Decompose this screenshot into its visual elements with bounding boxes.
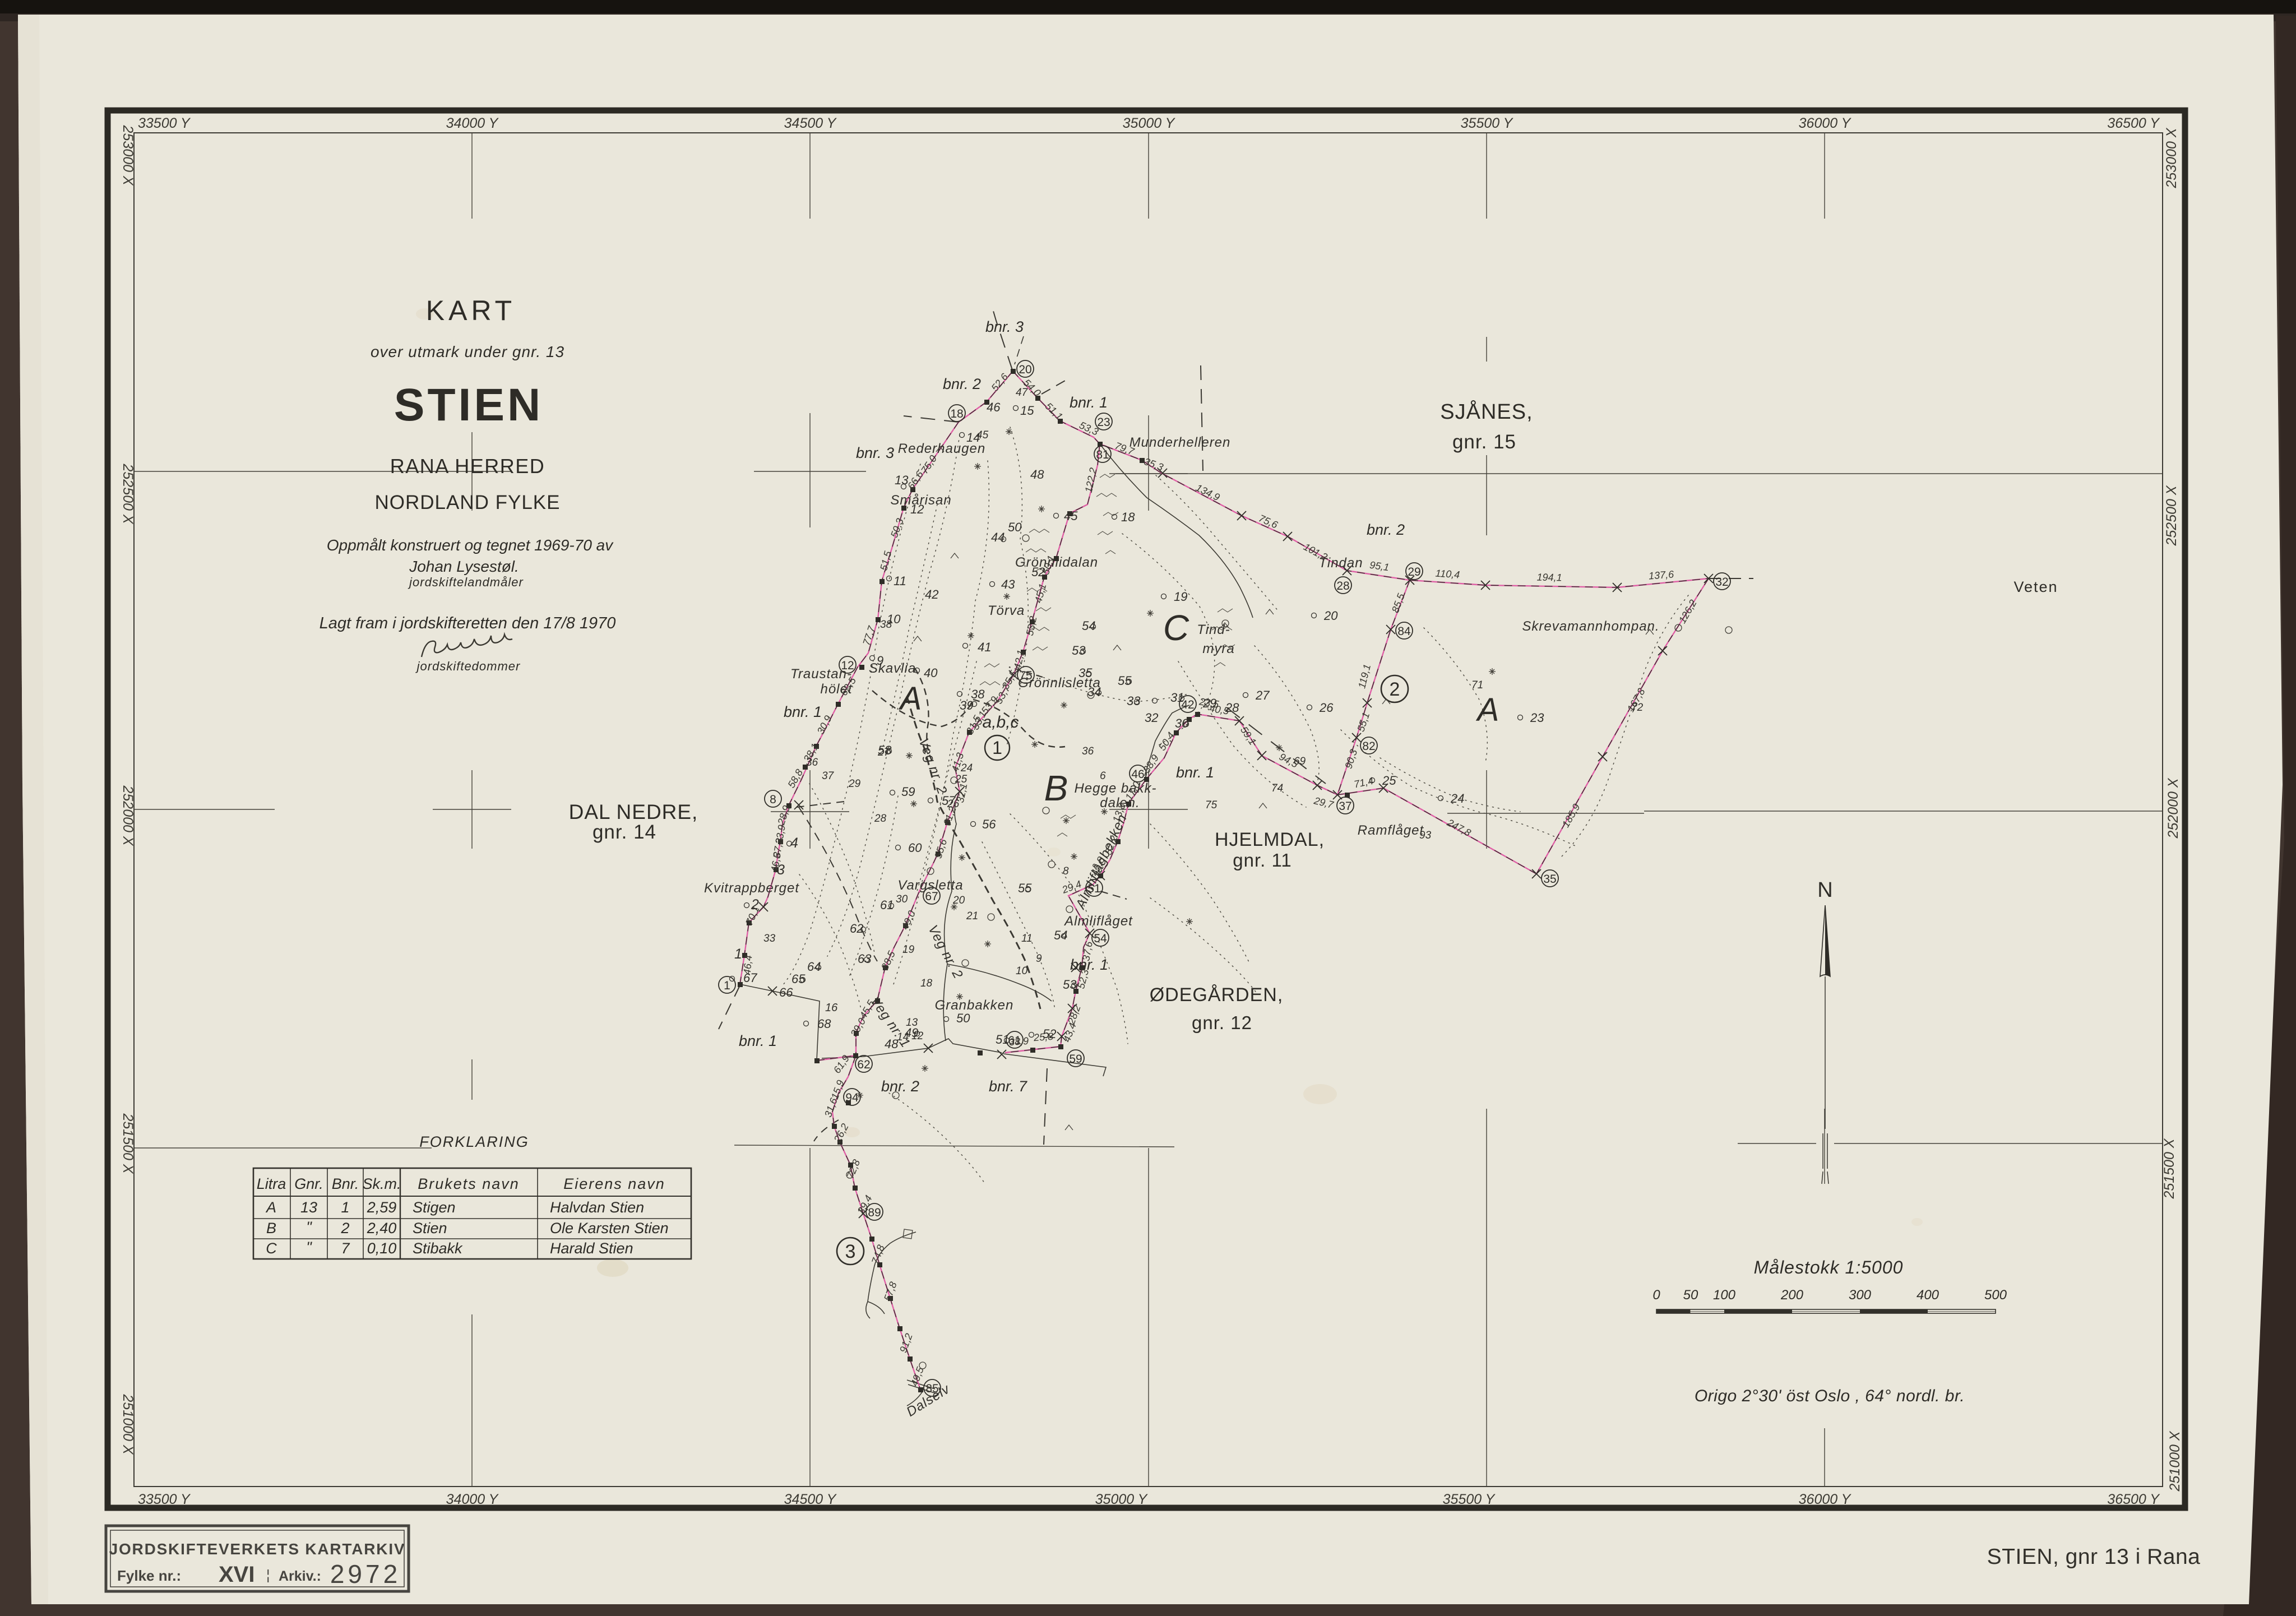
svg-text:36: 36 xyxy=(806,757,818,768)
svg-text:56: 56 xyxy=(982,817,996,831)
svg-text:34000 Y: 34000 Y xyxy=(446,1492,499,1507)
svg-text:38: 38 xyxy=(971,687,985,701)
svg-text:24: 24 xyxy=(960,762,973,774)
svg-text:0: 0 xyxy=(1652,1288,1660,1303)
svg-text:38,9: 38,9 xyxy=(1008,1035,1029,1048)
svg-text:34500 Y: 34500 Y xyxy=(784,1492,837,1507)
svg-text:gnr. 14: gnr. 14 xyxy=(592,821,656,843)
svg-text:19: 19 xyxy=(1174,590,1187,604)
svg-text:RANA HERRED: RANA HERRED xyxy=(390,455,545,478)
svg-text:38: 38 xyxy=(880,619,892,631)
svg-text:Stibakk: Stibakk xyxy=(413,1240,463,1257)
svg-text:ØDEGÅRDEN,: ØDEGÅRDEN, xyxy=(1150,984,1284,1006)
svg-text:28: 28 xyxy=(1225,701,1239,715)
svg-text:": " xyxy=(306,1219,312,1235)
svg-text:253000 X: 253000 X xyxy=(2164,127,2179,188)
svg-text:1: 1 xyxy=(341,1199,349,1216)
svg-text:2972: 2972 xyxy=(330,1559,401,1589)
svg-text:XVI: XVI xyxy=(219,1562,254,1587)
svg-text:41: 41 xyxy=(978,640,991,654)
svg-text:20: 20 xyxy=(1323,609,1338,623)
svg-text:bnr. 3: bnr. 3 xyxy=(856,444,894,461)
svg-text:23: 23 xyxy=(1530,711,1544,725)
svg-text:24: 24 xyxy=(1450,791,1464,805)
svg-text:53: 53 xyxy=(1072,643,1086,657)
svg-text:Traustan-: Traustan- xyxy=(790,666,852,682)
svg-text:93: 93 xyxy=(1419,830,1432,841)
svg-text:35000 Y: 35000 Y xyxy=(1095,1492,1149,1507)
svg-text:Almliflåget: Almliflåget xyxy=(1063,914,1133,929)
svg-text:bnr. 1: bnr. 1 xyxy=(739,1032,777,1049)
svg-text:53: 53 xyxy=(1063,978,1077,992)
svg-text:71: 71 xyxy=(1471,679,1483,691)
svg-text:27: 27 xyxy=(877,747,891,758)
svg-text:18: 18 xyxy=(920,978,933,989)
svg-text:0,10: 0,10 xyxy=(367,1240,397,1257)
svg-text:Skavlia: Skavlia xyxy=(869,661,916,676)
svg-text:20: 20 xyxy=(1019,363,1031,376)
svg-text:37: 37 xyxy=(822,770,835,782)
svg-text:STIEN: STIEN xyxy=(394,379,543,430)
svg-text:21: 21 xyxy=(966,910,978,922)
svg-text:Harald Stien: Harald Stien xyxy=(550,1240,633,1257)
svg-text:36500 Y: 36500 Y xyxy=(2107,115,2160,131)
svg-text:DAL NEDRE,: DAL NEDRE, xyxy=(569,800,698,823)
svg-text:SJÅNES,: SJÅNES, xyxy=(1440,399,1533,424)
svg-text:Bnr.: Bnr. xyxy=(332,1175,359,1192)
svg-text:55: 55 xyxy=(1018,881,1032,895)
svg-text:Kvitrappberget: Kvitrappberget xyxy=(704,881,799,896)
svg-text:Tind-: Tind- xyxy=(1197,622,1230,637)
svg-text:Granbakken: Granbakken xyxy=(935,998,1014,1013)
svg-text:84: 84 xyxy=(1397,625,1411,638)
svg-text:75: 75 xyxy=(1205,799,1218,811)
svg-text:gnr. 12: gnr. 12 xyxy=(1192,1012,1252,1033)
svg-text:35: 35 xyxy=(1078,666,1093,680)
svg-text:8: 8 xyxy=(770,793,776,806)
svg-text:29: 29 xyxy=(1202,696,1216,710)
svg-text:252500 X: 252500 X xyxy=(120,463,136,524)
svg-text:34500 Y: 34500 Y xyxy=(784,115,837,131)
svg-text:2: 2 xyxy=(340,1220,349,1237)
svg-text:36: 36 xyxy=(1082,746,1094,757)
svg-text:Arkiv.:: Arkiv.: xyxy=(279,1568,321,1584)
svg-text:65: 65 xyxy=(791,972,806,986)
svg-text:A: A xyxy=(265,1199,276,1216)
svg-text:bnr. 1: bnr. 1 xyxy=(1176,764,1214,781)
svg-text:Eierens navn: Eierens navn xyxy=(563,1175,665,1192)
svg-text:11: 11 xyxy=(894,574,906,588)
svg-text:Halvdan Stien: Halvdan Stien xyxy=(550,1199,644,1216)
svg-text:66: 66 xyxy=(779,985,793,999)
svg-text:28: 28 xyxy=(1336,580,1349,592)
svg-text:Brukets navn: Brukets navn xyxy=(418,1175,520,1192)
svg-text:43: 43 xyxy=(1001,577,1015,591)
svg-text:": " xyxy=(306,1239,312,1256)
svg-text:44: 44 xyxy=(991,530,1004,544)
svg-text:60: 60 xyxy=(908,841,922,855)
svg-text:14: 14 xyxy=(897,1031,909,1043)
svg-text:252000 X: 252000 X xyxy=(2165,777,2181,839)
svg-text:42: 42 xyxy=(925,587,938,601)
svg-text:Grönnlidalan: Grönnlidalan xyxy=(1015,555,1098,570)
svg-text:A: A xyxy=(899,680,922,717)
svg-text:¦: ¦ xyxy=(266,1567,270,1583)
svg-text:Litra: Litra xyxy=(257,1175,286,1192)
svg-text:48: 48 xyxy=(1030,467,1044,481)
svg-text:Lagt fram i jordskifteretten d: Lagt fram i jordskifteretten den 17/8 19… xyxy=(320,614,616,632)
svg-text:55: 55 xyxy=(1118,674,1132,688)
svg-text:52: 52 xyxy=(1043,1027,1056,1041)
svg-text:C: C xyxy=(266,1240,277,1257)
svg-text:33: 33 xyxy=(763,933,776,944)
svg-text:Törva: Törva xyxy=(988,603,1025,618)
svg-text:FORKLARING: FORKLARING xyxy=(419,1133,529,1150)
svg-text:35000 Y: 35000 Y xyxy=(1123,115,1176,131)
svg-text:63: 63 xyxy=(858,952,872,966)
svg-text:Gnr.: Gnr. xyxy=(294,1175,323,1192)
svg-text:64: 64 xyxy=(807,960,821,974)
svg-text:Ramflåget: Ramflåget xyxy=(1358,823,1424,838)
svg-text:252500 X: 252500 X xyxy=(2164,485,2179,546)
svg-text:31: 31 xyxy=(1170,691,1184,705)
svg-text:bnr. 2: bnr. 2 xyxy=(943,376,981,392)
svg-text:bnr. 2: bnr. 2 xyxy=(881,1078,919,1095)
svg-text:50: 50 xyxy=(1683,1288,1698,1303)
svg-text:1: 1 xyxy=(992,738,1002,758)
svg-text:19: 19 xyxy=(902,944,915,956)
svg-text:jordskiftelandmåler: jordskiftelandmåler xyxy=(408,575,524,589)
svg-text:myra: myra xyxy=(1202,641,1234,656)
svg-text:40: 40 xyxy=(924,666,938,680)
svg-text:35: 35 xyxy=(1543,873,1556,886)
svg-text:Origo 2°30' öst Oslo , 64°: Origo 2°30' öst Oslo , 64° nordl. br. xyxy=(1695,1387,1965,1405)
svg-text:100: 100 xyxy=(1713,1288,1736,1303)
svg-text:2: 2 xyxy=(751,897,759,913)
svg-text:62: 62 xyxy=(850,922,863,936)
svg-text:12: 12 xyxy=(910,502,924,516)
svg-text:2,40: 2,40 xyxy=(367,1220,397,1237)
svg-text:28: 28 xyxy=(874,813,887,825)
svg-text:16: 16 xyxy=(825,1002,838,1014)
svg-text:54: 54 xyxy=(1054,928,1067,942)
svg-text:68: 68 xyxy=(817,1017,831,1031)
svg-text:jordskiftedommer: jordskiftedommer xyxy=(415,659,521,673)
svg-text:bnr. 1: bnr. 1 xyxy=(784,703,822,720)
svg-text:25: 25 xyxy=(955,774,968,785)
svg-text:gnr. 11: gnr. 11 xyxy=(1233,850,1291,870)
svg-text:KART: KART xyxy=(426,295,516,326)
svg-text:Målestokk 1:5000: Målestokk 1:5000 xyxy=(1754,1257,1904,1277)
svg-text:bnr. 3: bnr. 3 xyxy=(985,318,1024,335)
svg-text:45: 45 xyxy=(976,429,989,441)
svg-text:52: 52 xyxy=(1031,565,1045,579)
svg-text:25: 25 xyxy=(1382,774,1396,788)
svg-text:62: 62 xyxy=(857,1058,870,1071)
svg-text:Oppmålt konstruert og tegnet 1: Oppmålt konstruert og tegnet 1969-70 av xyxy=(327,536,614,554)
svg-text:gnr. 15: gnr. 15 xyxy=(1452,431,1516,453)
svg-text:34000 Y: 34000 Y xyxy=(446,115,499,131)
svg-text:Johan Lysestøl.: Johan Lysestøl. xyxy=(409,558,519,575)
svg-text:33: 33 xyxy=(1127,694,1141,708)
svg-text:46: 46 xyxy=(987,400,1001,414)
svg-text:59: 59 xyxy=(901,785,915,799)
svg-text:26: 26 xyxy=(947,798,960,810)
svg-text:NORDLAND FYLKE: NORDLAND FYLKE xyxy=(374,492,560,513)
svg-text:82: 82 xyxy=(1362,740,1375,753)
svg-text:50: 50 xyxy=(956,1011,970,1025)
svg-text:74: 74 xyxy=(1271,782,1283,794)
svg-text:36000 Y: 36000 Y xyxy=(1799,1492,1852,1507)
svg-text:2: 2 xyxy=(1390,679,1400,700)
svg-text:400: 400 xyxy=(1917,1288,1939,1303)
svg-text:Vargsletta: Vargsletta xyxy=(897,878,963,893)
svg-text:35500 Y: 35500 Y xyxy=(1443,1492,1496,1507)
svg-text:Hegge bakk-: Hegge bakk- xyxy=(1074,781,1156,796)
svg-text:bnr. 7: bnr. 7 xyxy=(989,1078,1027,1095)
svg-text:bnr. 1: bnr. 1 xyxy=(1070,394,1108,411)
svg-text:30: 30 xyxy=(1175,716,1189,730)
svg-text:Ole Karsten Stien: Ole Karsten Stien xyxy=(550,1220,669,1237)
svg-text:251500 X: 251500 X xyxy=(120,1113,136,1174)
svg-text:13: 13 xyxy=(906,1017,918,1029)
svg-text:A: A xyxy=(1476,692,1499,728)
svg-text:Skrevamannhompan.: Skrevamannhompan. xyxy=(1522,619,1659,634)
svg-text:29: 29 xyxy=(848,778,861,790)
svg-text:251000 X: 251000 X xyxy=(120,1393,136,1455)
svg-text:69: 69 xyxy=(1294,756,1306,767)
svg-text:251500 X: 251500 X xyxy=(2161,1138,2177,1199)
svg-text:18: 18 xyxy=(1121,510,1135,524)
svg-text:30: 30 xyxy=(896,893,908,905)
svg-text:B: B xyxy=(266,1220,276,1237)
svg-text:7: 7 xyxy=(341,1240,350,1257)
svg-text:37: 37 xyxy=(1339,800,1351,813)
svg-text:89: 89 xyxy=(868,1206,881,1219)
svg-text:50: 50 xyxy=(1008,520,1022,534)
svg-text:N: N xyxy=(1817,878,1832,902)
svg-text:252000 X: 252000 X xyxy=(120,785,136,846)
svg-text:61: 61 xyxy=(880,898,894,912)
svg-text:137,6: 137,6 xyxy=(1648,568,1674,581)
svg-text:54: 54 xyxy=(1082,619,1095,633)
svg-text:32: 32 xyxy=(1715,576,1728,589)
svg-text:C: C xyxy=(1163,608,1189,648)
svg-text:over utmark under gnr. 13: over utmark under gnr. 13 xyxy=(371,343,564,360)
svg-text:Sk.m.: Sk.m. xyxy=(362,1175,401,1192)
svg-text:13: 13 xyxy=(300,1199,317,1216)
svg-text:Veten: Veten xyxy=(2013,578,2058,595)
svg-text:2,59: 2,59 xyxy=(367,1199,397,1216)
svg-text:10: 10 xyxy=(1016,965,1028,977)
svg-text:11: 11 xyxy=(1021,933,1033,944)
svg-text:3: 3 xyxy=(777,862,785,878)
svg-text:JORDSKIFTEVERKETS KARTARKIV: JORDSKIFTEVERKETS KARTARKIV xyxy=(109,1540,406,1558)
svg-text:51: 51 xyxy=(996,1032,1009,1047)
svg-text:12: 12 xyxy=(911,1030,924,1042)
svg-text:13: 13 xyxy=(895,473,909,487)
svg-text:bnr. 2: bnr. 2 xyxy=(1367,521,1405,538)
svg-text:194,1: 194,1 xyxy=(1536,572,1562,584)
svg-text:35500 Y: 35500 Y xyxy=(1461,115,1514,131)
svg-text:81: 81 xyxy=(1096,448,1109,461)
svg-text:6: 6 xyxy=(1100,770,1106,782)
svg-text:HJELMDAL,: HJELMDAL, xyxy=(1215,829,1325,850)
svg-text:72: 72 xyxy=(1631,702,1644,714)
svg-text:29: 29 xyxy=(1408,566,1420,578)
svg-text:18: 18 xyxy=(950,408,963,420)
svg-text:1: 1 xyxy=(724,979,730,992)
svg-text:27: 27 xyxy=(1255,688,1270,702)
svg-text:Fylke nr.:: Fylke nr.: xyxy=(117,1567,181,1584)
svg-text:110,4: 110,4 xyxy=(1435,568,1460,581)
svg-text:Stien: Stien xyxy=(413,1220,447,1237)
svg-text:B: B xyxy=(1044,768,1068,808)
svg-text:94: 94 xyxy=(845,1091,859,1104)
svg-text:59: 59 xyxy=(1069,1053,1082,1066)
svg-text:33500 Y: 33500 Y xyxy=(138,1492,191,1507)
svg-text:253000 X: 253000 X xyxy=(120,124,136,186)
svg-text:32: 32 xyxy=(1145,711,1158,725)
svg-text:3: 3 xyxy=(845,1241,856,1262)
svg-text:500: 500 xyxy=(1984,1288,2007,1303)
svg-text:54: 54 xyxy=(1094,932,1107,945)
svg-text:STIEN, gnr 13 i Rana: STIEN, gnr 13 i Rana xyxy=(1987,1545,2201,1569)
svg-text:36000 Y: 36000 Y xyxy=(1799,115,1852,131)
svg-text:45: 45 xyxy=(1064,509,1078,523)
svg-text:9: 9 xyxy=(1036,953,1042,965)
svg-text:15: 15 xyxy=(1020,404,1034,418)
svg-text:26: 26 xyxy=(1319,701,1334,715)
svg-text:9: 9 xyxy=(877,654,883,668)
svg-text:Munderhelleren: Munderhelleren xyxy=(1130,435,1231,450)
svg-text:33500 Y: 33500 Y xyxy=(138,115,191,131)
svg-text:200: 200 xyxy=(1780,1288,1804,1303)
svg-text:67: 67 xyxy=(743,971,757,985)
svg-text:8: 8 xyxy=(1063,865,1069,877)
svg-text:300: 300 xyxy=(1849,1288,1872,1303)
svg-text:Stigen: Stigen xyxy=(413,1199,456,1216)
svg-text:251000 X: 251000 X xyxy=(2167,1430,2183,1492)
svg-text:36500 Y: 36500 Y xyxy=(2107,1492,2160,1507)
svg-text:47: 47 xyxy=(1016,387,1029,399)
svg-text:1: 1 xyxy=(734,946,742,962)
